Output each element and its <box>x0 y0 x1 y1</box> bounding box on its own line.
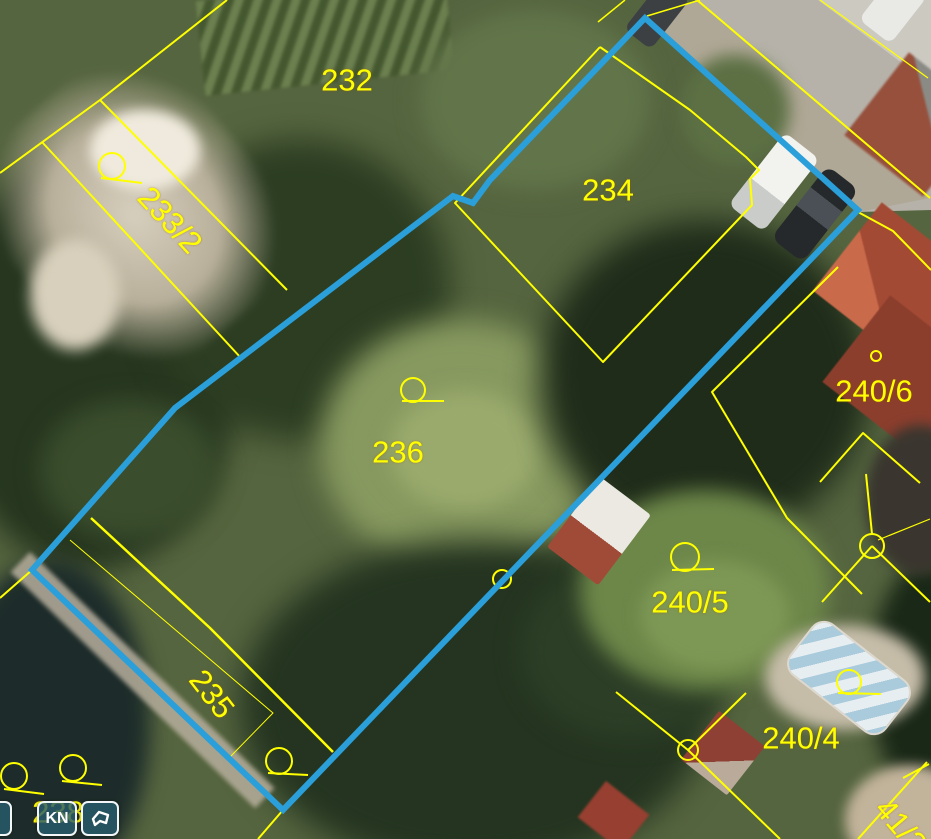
grass-patch <box>420 10 650 190</box>
rubble-highlight <box>30 240 120 350</box>
layer-button-partial[interactable]: H <box>0 801 12 836</box>
rubble-highlight <box>90 110 200 190</box>
parcel-label-232: 232 <box>321 65 373 96</box>
parcel-boundary-line <box>258 810 283 839</box>
parcel-label-234: 234 <box>582 175 634 206</box>
polygon-icon <box>89 809 111 829</box>
parcel-label-236: 236 <box>372 437 424 468</box>
parcel-label-240-6: 240/6 <box>835 376 913 407</box>
parcel-label-240-4: 240/4 <box>762 723 840 754</box>
roofs-dark <box>865 425 931 575</box>
map-canvas[interactable]: 232 233/2 234 236 235 240/6 240/5 240/4 … <box>0 0 931 839</box>
kn-button[interactable]: KN <box>37 801 77 836</box>
parcel-label-240-5: 240/5 <box>651 587 729 618</box>
grass-patch <box>40 400 220 540</box>
polygon-tool-button[interactable] <box>81 801 119 836</box>
